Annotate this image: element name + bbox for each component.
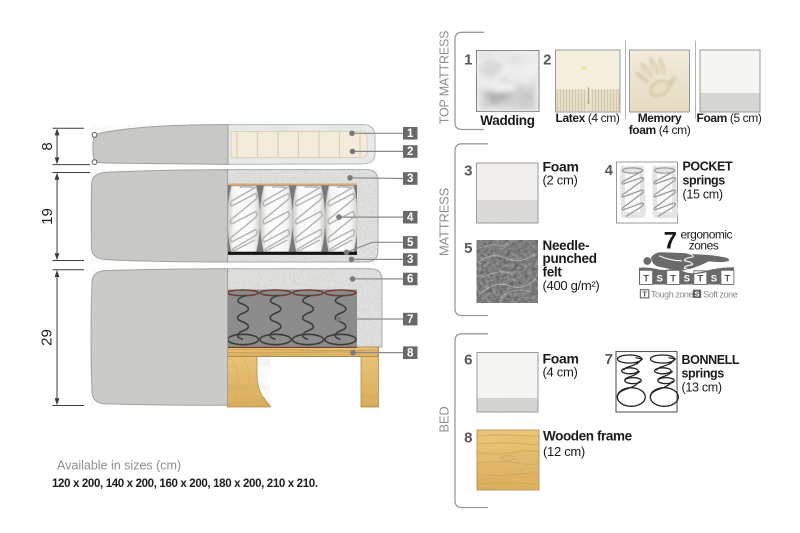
svg-text:T: T (643, 274, 649, 285)
svg-text:2: 2 (407, 146, 413, 158)
svg-text:S: S (711, 274, 717, 285)
svg-text:4: 4 (407, 212, 414, 224)
svg-text:Wadding: Wadding (480, 113, 534, 128)
svg-text:(400 g/m²): (400 g/m²) (543, 278, 600, 293)
svg-text:6: 6 (464, 352, 472, 369)
svg-text:120 x 200, 140 x 200, 160 x 20: 120 x 200, 140 x 200, 160 x 200, 180 x 2… (52, 478, 318, 490)
svg-text:TOP MATTRESS: TOP MATTRESS (438, 31, 452, 124)
svg-text:BED: BED (437, 406, 452, 432)
svg-text:S: S (694, 290, 699, 299)
svg-text:8: 8 (407, 347, 414, 359)
svg-text:1: 1 (464, 52, 472, 69)
svg-text:springs: springs (683, 174, 726, 188)
svg-text:foam (4 cm): foam (4 cm) (629, 123, 691, 137)
svg-text:(4 cm): (4 cm) (543, 365, 578, 380)
svg-text:7: 7 (664, 228, 677, 255)
svg-text:Soft zone: Soft zone (703, 289, 737, 299)
svg-text:(2 cm): (2 cm) (543, 173, 578, 188)
svg-text:zones: zones (689, 239, 719, 253)
svg-text:S: S (657, 274, 663, 285)
svg-text:Tough zone: Tough zone (651, 289, 693, 299)
svg-text:3: 3 (407, 173, 413, 185)
svg-text:5: 5 (464, 240, 472, 257)
svg-text:8: 8 (464, 430, 472, 447)
svg-text:MATTRESS: MATTRESS (437, 187, 452, 256)
svg-text:T: T (724, 274, 730, 285)
svg-text:T: T (642, 290, 647, 299)
svg-text:(13 cm): (13 cm) (682, 381, 722, 395)
svg-text:19: 19 (39, 208, 56, 225)
svg-text:8: 8 (39, 142, 56, 150)
svg-text:BONNELL: BONNELL (682, 353, 740, 367)
svg-text:3: 3 (407, 254, 413, 266)
svg-text:5: 5 (407, 237, 414, 249)
svg-text:T: T (670, 274, 676, 285)
svg-text:3: 3 (464, 163, 472, 180)
svg-text:6: 6 (407, 274, 413, 286)
svg-text:(15 cm): (15 cm) (683, 188, 723, 202)
svg-text:1: 1 (407, 128, 414, 140)
svg-text:Wooden frame: Wooden frame (543, 429, 633, 444)
svg-text:S: S (684, 274, 690, 285)
svg-text:4: 4 (605, 162, 614, 179)
svg-text:7: 7 (605, 351, 613, 368)
svg-text:Foam (5 cm): Foam (5 cm) (697, 111, 762, 125)
svg-text:T: T (697, 274, 703, 285)
svg-text:2: 2 (543, 52, 551, 69)
svg-text:(12 cm): (12 cm) (543, 444, 585, 459)
svg-text:29: 29 (39, 329, 56, 346)
svg-text:7: 7 (407, 314, 413, 326)
svg-text:POCKET: POCKET (683, 160, 733, 174)
svg-text:springs: springs (682, 367, 725, 381)
svg-text:Available in sizes (cm): Available in sizes (cm) (57, 459, 181, 473)
svg-text:Latex (4 cm): Latex (4 cm) (556, 111, 620, 125)
